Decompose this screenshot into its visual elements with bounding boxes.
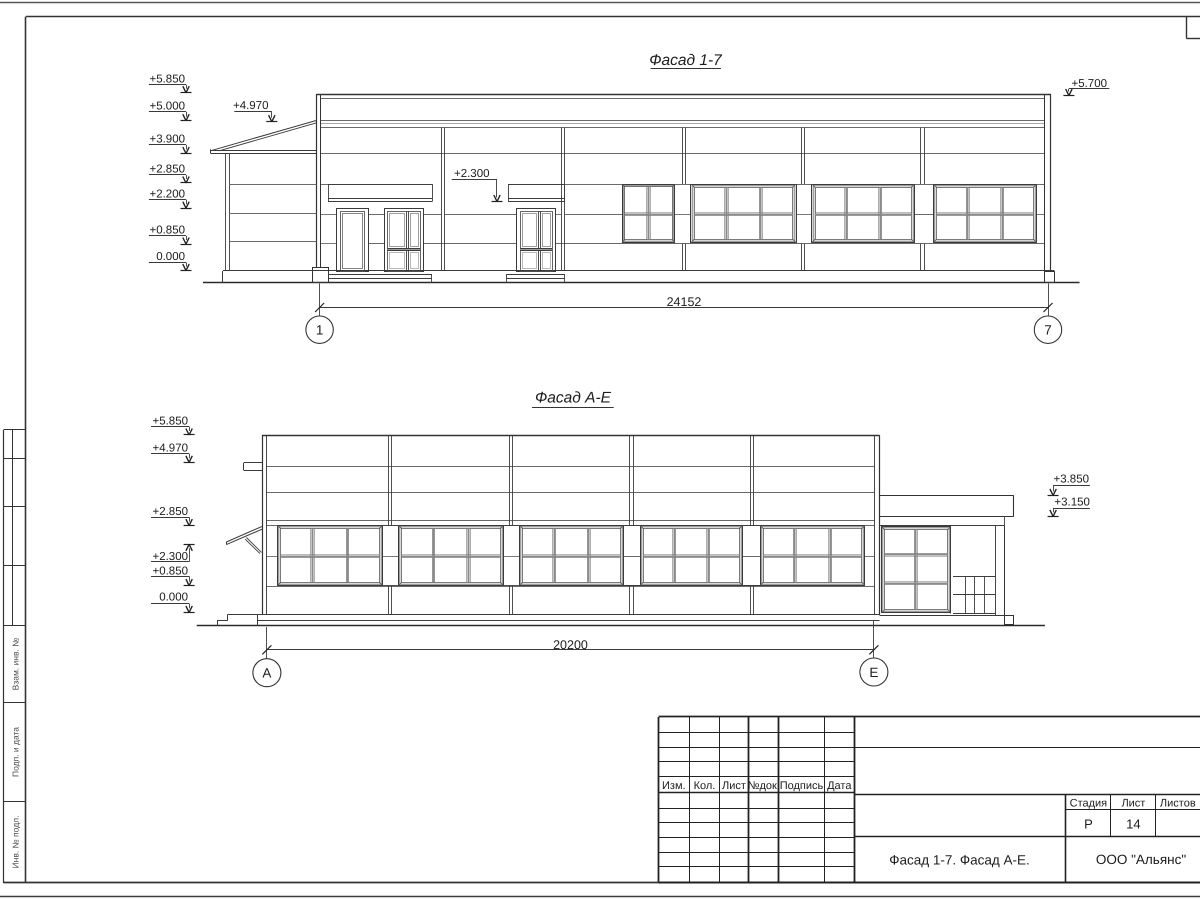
- svg-text:+4.970: +4.970: [233, 100, 269, 112]
- svg-text:+2.850: +2.850: [150, 164, 186, 176]
- svg-text:+0.850: +0.850: [150, 224, 186, 236]
- svg-text:24152: 24152: [667, 295, 702, 309]
- svg-text:+5.850: +5.850: [150, 74, 186, 86]
- svg-text:Е: Е: [869, 665, 878, 680]
- svg-text:+3.150: +3.150: [1054, 497, 1090, 509]
- svg-text:20200: 20200: [553, 638, 588, 652]
- svg-text:+2.300: +2.300: [153, 551, 189, 563]
- svg-text:Подп. и дата: Подп. и дата: [11, 727, 21, 777]
- svg-text:+2.200: +2.200: [150, 189, 186, 201]
- svg-text:Фасад А-Е: Фасад А-Е: [535, 390, 612, 407]
- svg-text:Кол.: Кол.: [694, 780, 716, 792]
- svg-text:А: А: [262, 666, 271, 681]
- svg-text:+3.900: +3.900: [150, 134, 186, 146]
- svg-text:0.000: 0.000: [156, 251, 185, 263]
- svg-text:Лист: Лист: [722, 780, 746, 792]
- svg-text:+3.850: +3.850: [1054, 473, 1090, 485]
- svg-text:+2.300: +2.300: [454, 168, 490, 180]
- svg-text:Лист: Лист: [1121, 798, 1145, 810]
- svg-text:Листов: Листов: [1160, 798, 1196, 810]
- svg-text:+5.000: +5.000: [150, 101, 186, 113]
- svg-text:Инв. № подл.: Инв. № подл.: [11, 816, 21, 869]
- svg-text:Взам. инв. №: Взам. инв. №: [11, 638, 21, 691]
- svg-text:ООО "Альянс": ООО "Альянс": [1096, 852, 1186, 867]
- svg-text:+2.850: +2.850: [153, 506, 189, 518]
- svg-text:+0.850: +0.850: [153, 566, 189, 578]
- svg-text:Р: Р: [1084, 817, 1093, 832]
- svg-text:Фасад 1-7: Фасад 1-7: [649, 52, 723, 69]
- svg-text:0.000: 0.000: [159, 591, 188, 603]
- svg-text:1: 1: [316, 323, 324, 338]
- svg-text:№док.: №док.: [748, 780, 780, 792]
- svg-text:Фасад 1-7. Фасад А-Е.: Фасад 1-7. Фасад А-Е.: [889, 853, 1030, 868]
- svg-text:7: 7: [1044, 323, 1052, 338]
- svg-text:Стадия: Стадия: [1070, 798, 1108, 810]
- svg-text:Подпись: Подпись: [780, 780, 824, 792]
- svg-text:Дата: Дата: [827, 780, 852, 792]
- svg-text:Изм.: Изм.: [662, 780, 686, 792]
- svg-text:+5.850: +5.850: [153, 415, 189, 427]
- svg-text:14: 14: [1126, 817, 1140, 832]
- svg-text:+4.970: +4.970: [153, 442, 189, 454]
